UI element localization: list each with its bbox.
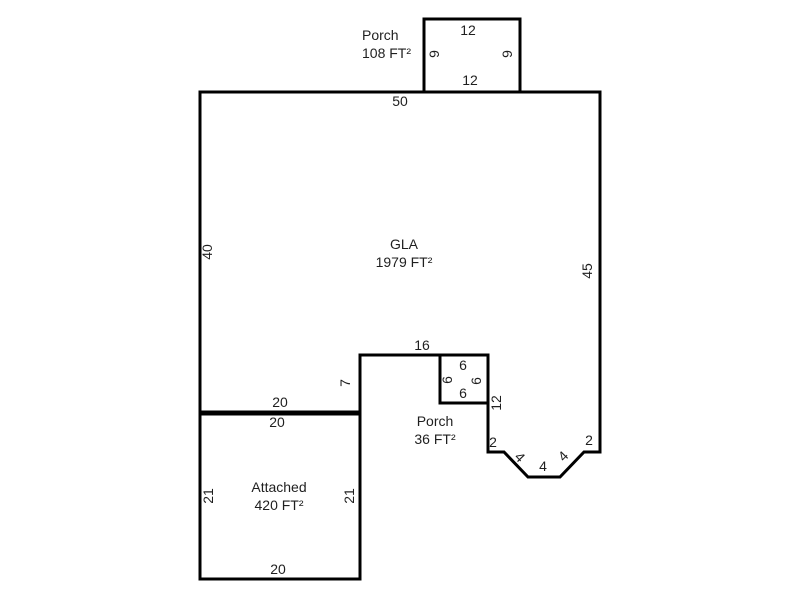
gla-dim-bottom-left: 20: [272, 394, 288, 410]
porch-top-label: Porch 108 FT²: [362, 26, 411, 62]
floorplan-walls: [0, 0, 800, 600]
porch-small-label: Porch 36 FT²: [414, 412, 455, 448]
porch-small-dim-left: 6: [439, 376, 455, 384]
garage-name: Attached: [251, 478, 306, 496]
gla-area: 1979 FT²: [376, 253, 433, 271]
porch-small-dim-bottom: 6: [459, 385, 467, 401]
gla-dim-notch-top: 16: [414, 337, 430, 353]
garage-area: 420 FT²: [251, 496, 306, 514]
porch-top-dim-right: 9: [499, 50, 515, 58]
gla-dim-bay-left: 2: [489, 434, 497, 450]
gla-dim-top: 50: [392, 93, 408, 109]
porch-top-dim-top: 12: [460, 22, 476, 38]
garage-dim-bottom: 20: [270, 561, 286, 577]
gla-outline: [200, 92, 600, 477]
gla-dim-right: 45: [579, 263, 595, 279]
garage-dim-top: 20: [269, 414, 285, 430]
garage-dim-left: 21: [200, 488, 216, 504]
porch-top-dim-left: 9: [426, 50, 442, 58]
porch-small-dim-top: 6: [459, 357, 467, 373]
porch-small-name: Porch: [414, 412, 455, 430]
garage-dim-right: 21: [341, 488, 357, 504]
porch-top-area: 108 FT²: [362, 44, 411, 62]
porch-top-name: Porch: [362, 26, 411, 44]
porch-top-dim-bottom: 12: [462, 72, 478, 88]
porch-small-dim-right: 6: [468, 377, 484, 385]
gla-dim-notch-right: 12: [488, 395, 504, 411]
garage-label: Attached 420 FT²: [251, 478, 306, 514]
gla-dim-left: 40: [199, 244, 215, 260]
gla-dim-notch-left: 7: [337, 379, 353, 387]
porch-small-area: 36 FT²: [414, 430, 455, 448]
gla-label: GLA 1979 FT²: [376, 235, 433, 271]
floorplan-sketch: Porch 108 FT² 12 9 9 12 50 40 45 GLA 197…: [0, 0, 800, 600]
gla-dim-bay-right: 2: [585, 432, 593, 448]
gla-name: GLA: [376, 235, 433, 253]
gla-dim-bay-bottom: 4: [539, 458, 547, 474]
